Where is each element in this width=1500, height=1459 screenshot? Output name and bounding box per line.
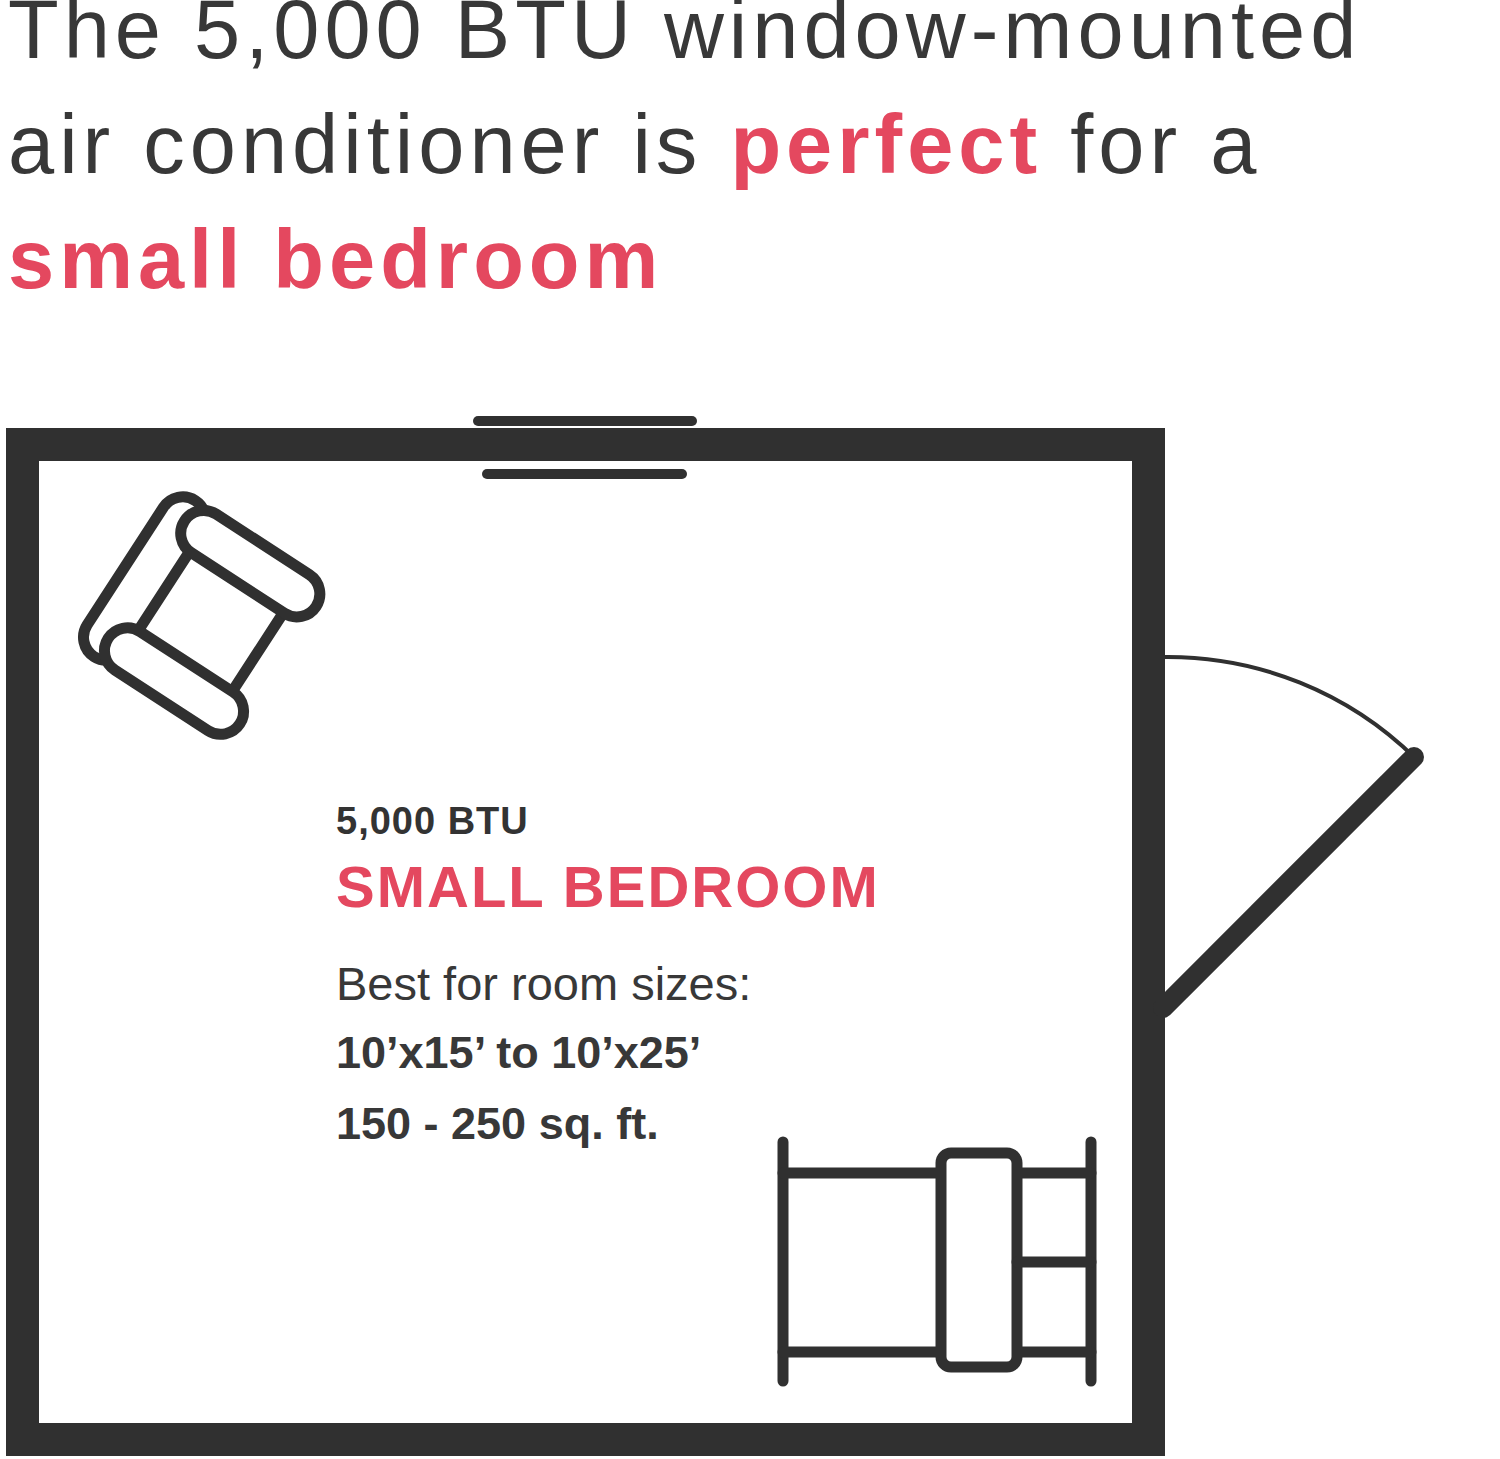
armchair-icon: [75, 488, 329, 743]
room-type-label: SMALL BEDROOM: [336, 853, 880, 920]
window-inner-bar: [482, 469, 687, 479]
room-area: 150 - 250 sq. ft.: [336, 1098, 880, 1150]
room-info: 5,000 BTU SMALL BEDROOM Best for room si…: [336, 800, 880, 1150]
floorplan: [0, 0, 1500, 1459]
window-outer-bar: [473, 416, 697, 426]
room-size-subtitle: Best for room sizes:: [336, 956, 880, 1011]
infographic: The 5,000 BTU window-mounted air conditi…: [0, 0, 1500, 1459]
door-swing-icon: [1163, 657, 1415, 1008]
door-swing-arc: [1165, 657, 1415, 758]
bed-icon: [783, 1142, 1091, 1381]
room-dimensions: 10’x15’ to 10’x25’: [336, 1027, 880, 1079]
bed-pillow: [941, 1153, 1017, 1367]
door-leaf: [1163, 757, 1414, 1008]
btu-label: 5,000 BTU: [336, 800, 880, 843]
